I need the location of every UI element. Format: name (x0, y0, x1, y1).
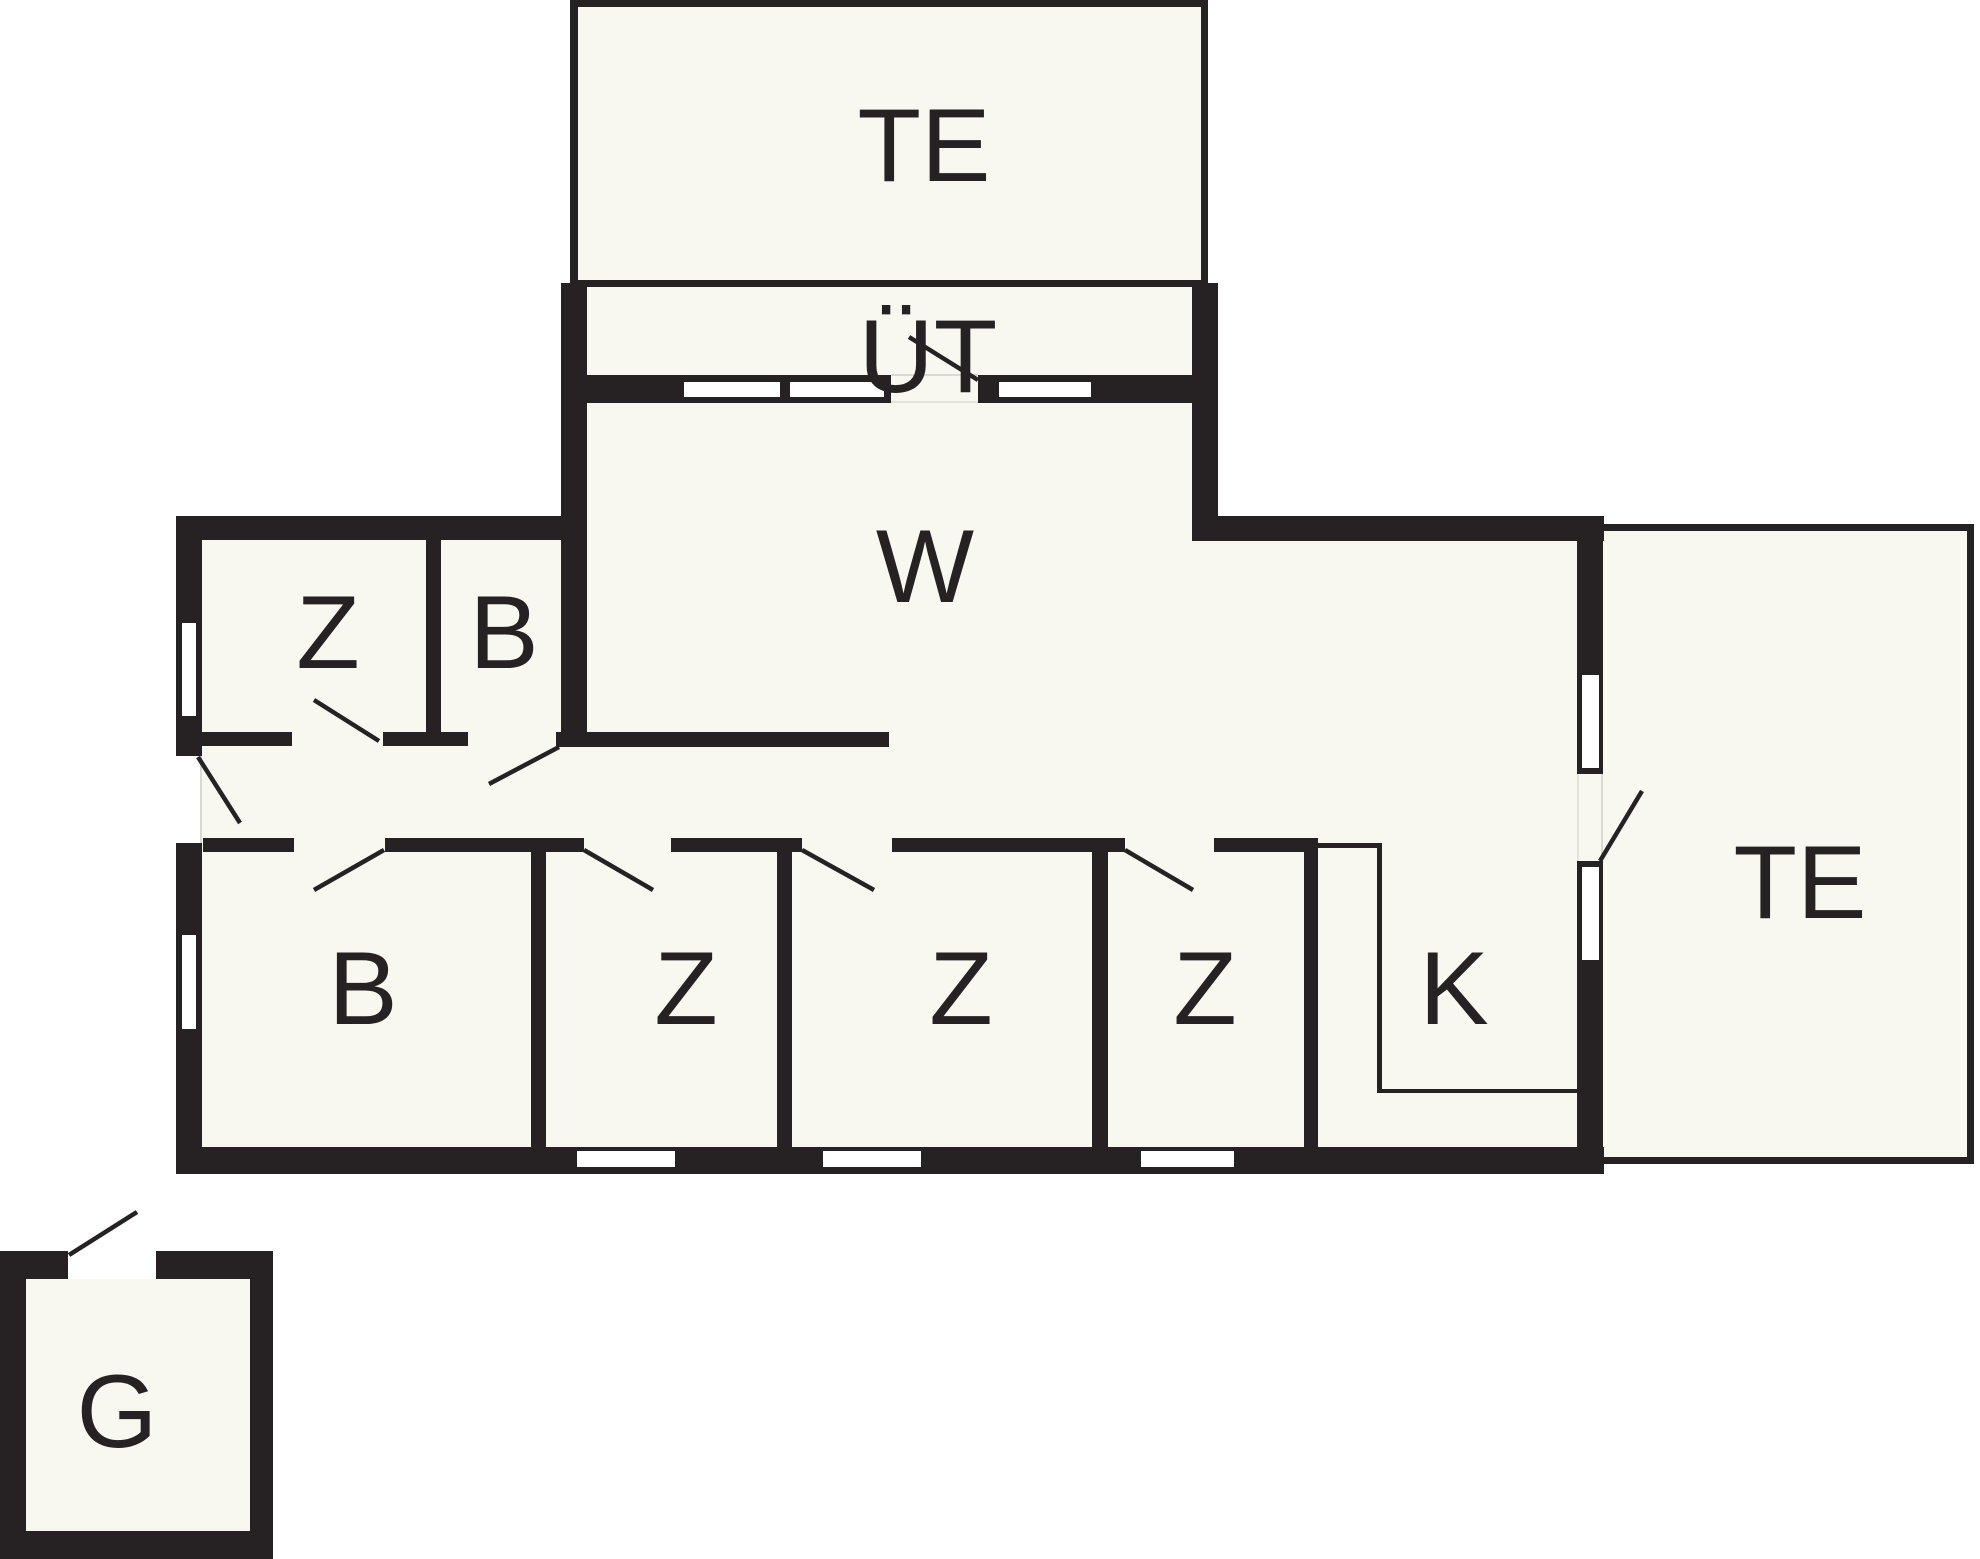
svg-text:ÜT: ÜT (859, 299, 998, 415)
svg-text:TE: TE (858, 88, 991, 204)
svg-text:G: G (77, 1354, 158, 1470)
svg-text:B: B (469, 575, 538, 691)
svg-text:Z: Z (1173, 931, 1237, 1047)
svg-text:K: K (1419, 931, 1488, 1047)
svg-text:B: B (328, 931, 397, 1047)
svg-text:TE: TE (1734, 825, 1867, 941)
svg-text:Z: Z (296, 575, 360, 691)
svg-text:Z: Z (929, 931, 993, 1047)
svg-text:W: W (876, 509, 974, 625)
svg-text:Z: Z (654, 931, 718, 1047)
